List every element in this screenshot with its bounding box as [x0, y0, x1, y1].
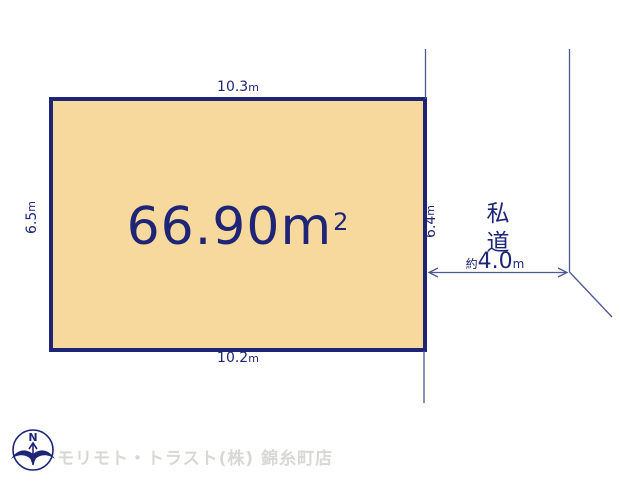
- road-width-prefix: 約: [466, 257, 478, 271]
- area-unit: m: [280, 197, 332, 257]
- road-width-arrowhead-right: [558, 268, 567, 277]
- land-plot-diagram: 66.90m2 10.3m 10.2m 6.5m 6.4m 私道 約4.0m N…: [0, 0, 640, 480]
- company-watermark: モリモト・トラスト(株) 錦糸町店: [57, 444, 333, 469]
- dimension-bottom: 10.2m: [49, 350, 427, 366]
- dimension-top-unit: m: [248, 81, 259, 94]
- compass-north-letter: N: [28, 431, 37, 444]
- dimension-left-unit: m: [25, 201, 38, 212]
- dimension-bottom-value: 10.2: [217, 350, 248, 366]
- land-parcel: 66.90m2: [49, 97, 427, 352]
- road-width-unit: m: [513, 257, 525, 271]
- dimension-left-value: 6.5: [24, 212, 40, 234]
- area-value: 66.90: [127, 197, 281, 257]
- compass-circle: [13, 430, 53, 470]
- dimension-bottom-unit: m: [248, 352, 259, 365]
- dimension-top-value: 10.3: [217, 79, 248, 95]
- dimension-top: 10.3m: [49, 79, 427, 95]
- dimension-right-unit: m: [424, 205, 437, 216]
- road-width-label: 約4.0m: [434, 249, 556, 274]
- dimension-left: 6.5m: [25, 201, 39, 234]
- compass-needle-arrowhead: [29, 443, 37, 449]
- area-superscript: 2: [333, 208, 349, 236]
- road-width-value: 4.0: [478, 249, 513, 274]
- road-line-diagonal: [570, 272, 613, 317]
- dimension-right: 6.4m: [424, 205, 438, 238]
- area-label: 66.90m2: [127, 201, 350, 253]
- dimension-right-value: 6.4: [423, 216, 439, 238]
- compass: N: [11, 430, 55, 470]
- compass-bird-icon: [11, 450, 55, 465]
